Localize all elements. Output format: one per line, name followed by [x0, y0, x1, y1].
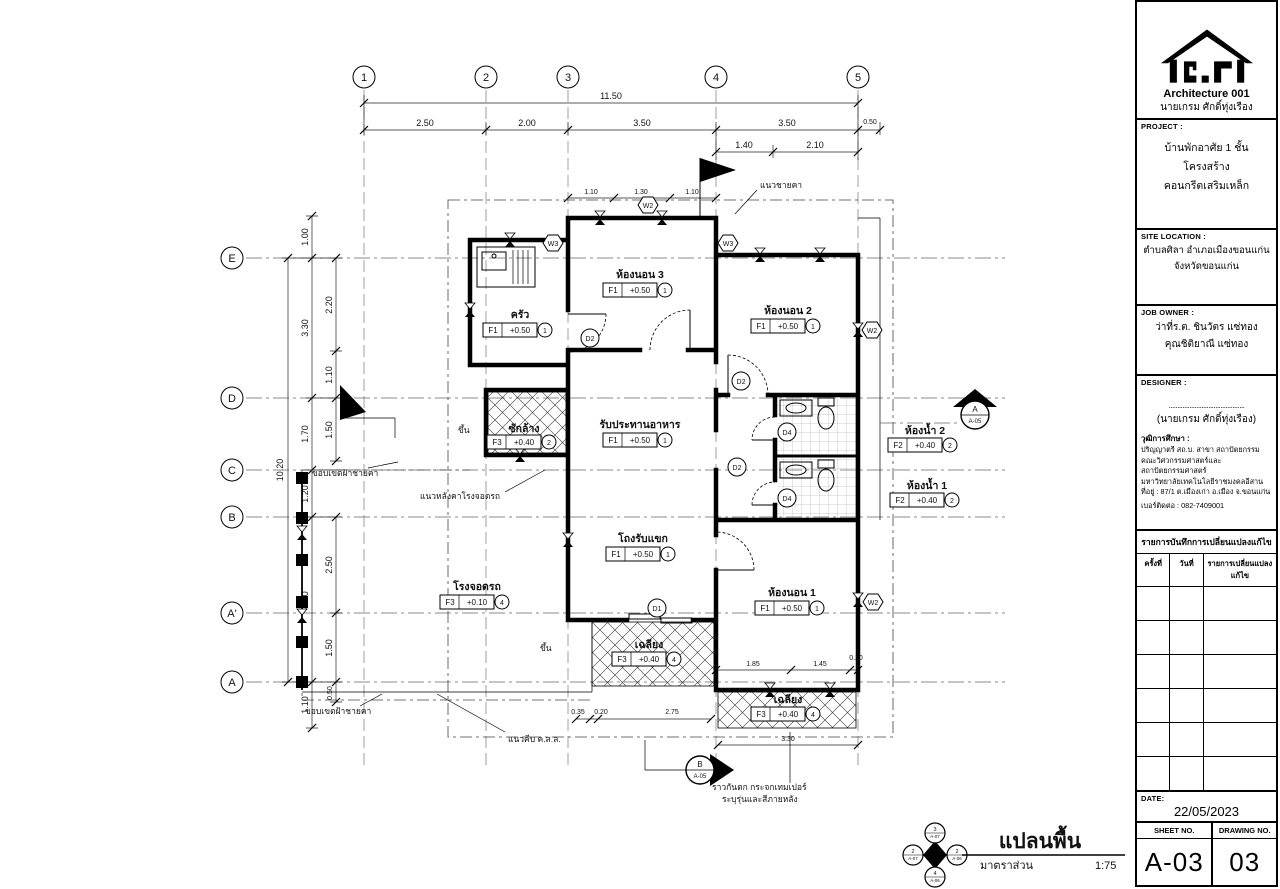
room-label-kitchen: ครัว F1 +0.50 1	[483, 309, 552, 337]
section-marker-bottom: B A-05	[645, 740, 734, 786]
svg-text:F1: F1	[608, 286, 618, 295]
grid-col-label: 5	[855, 72, 861, 84]
site-line: จังหวัดขอนแก่น	[1141, 259, 1272, 275]
owner-line: คุณชิติยาณี แซ่ทอง	[1141, 336, 1272, 353]
railing-note: ระบุรุ่นและสีภายหลัง	[722, 794, 798, 805]
project-section: PROJECT : บ้านพักอาศัย 1 ชั้น โครงสร้างค…	[1137, 120, 1276, 230]
firm-name: Architecture 001	[1163, 88, 1249, 100]
revision-col-desc: รายการเปลี่ยนแปลง แก้ไข	[1204, 554, 1276, 586]
revision-row	[1137, 689, 1276, 723]
revision-row	[1137, 587, 1276, 621]
dim: 1.50	[324, 639, 334, 657]
svg-text:ซักล้าง: ซักล้าง	[509, 422, 540, 435]
project-label: PROJECT :	[1141, 122, 1272, 131]
svg-text:F1: F1	[760, 604, 770, 613]
dim: 2.20	[324, 296, 334, 314]
grid-row-label: B	[228, 512, 235, 524]
window-tag: W2	[643, 203, 654, 210]
section-marker-right: A A-05	[880, 389, 997, 429]
svg-text:4: 4	[672, 657, 676, 664]
window-tag: W2	[867, 328, 878, 335]
window-tag: W2	[868, 600, 879, 607]
svg-text:1: 1	[543, 328, 547, 335]
curb-note: แนวคีบ ค.ส.ล.	[508, 734, 561, 744]
svg-text:A-05: A-05	[969, 419, 982, 425]
dim: 1.10	[685, 189, 699, 196]
dim: 1.00	[300, 228, 310, 246]
door-tag: D1	[653, 606, 662, 613]
svg-text:2: 2	[948, 443, 952, 450]
grid-row-label: A	[228, 677, 236, 689]
grid-row-label: D	[228, 393, 236, 405]
room-label-bedroom3: ห้องนอน 3 F1 +0.50 1	[603, 268, 672, 297]
room-label-garage: โรงจอดรถ F3 +0.10 4	[440, 580, 509, 609]
door-tag: D2	[737, 379, 746, 386]
svg-text:F2: F2	[893, 441, 903, 450]
door-tag: D2	[586, 336, 595, 343]
room-label-bedroom2: ห้องนอน 2 F1 +0.50 1	[751, 304, 820, 333]
sheet-no-value: A-03	[1137, 839, 1211, 885]
date-label: DATE:	[1141, 794, 1272, 803]
dim: 10.20	[275, 459, 285, 482]
grid-row-label: C	[228, 465, 236, 477]
svg-text:+0.40: +0.40	[514, 438, 535, 447]
svg-text:4: 4	[933, 871, 936, 877]
grid-col-label: 1	[361, 72, 367, 84]
dim: 1.30	[634, 189, 648, 196]
svg-text:+0.10: +0.10	[467, 598, 488, 607]
svg-text:A: A	[972, 405, 978, 414]
svg-text:+0.40: +0.40	[639, 655, 660, 664]
education-line: มหาวิทยาลัยเทคโนโลยีราชมงคลอีสาน	[1141, 477, 1272, 488]
svg-text:F1: F1	[756, 322, 766, 331]
room-label-bath2: ห้องน้ำ 2 F2 +0.40 2	[888, 422, 957, 452]
svg-text:B: B	[697, 760, 702, 769]
railing-note: ราวกันตก กระจกเทมเปอร์	[712, 782, 807, 792]
dim: 1.10	[324, 366, 334, 384]
ceiling-note: ขอบเขตฝ้าชายคา	[305, 706, 371, 716]
svg-text:ห้องน้ำ 1: ห้องน้ำ 1	[907, 477, 947, 492]
room-label-bedroom1: ห้องนอน 1 F1 +0.50 1	[755, 586, 824, 615]
firm-owner: นายเกรม ศักดิ์ทุ่งเรือง	[1160, 100, 1253, 115]
project-line: โครงสร้างคอนกรีตเสริมเหล็ก	[1141, 158, 1272, 196]
revision-row	[1137, 723, 1276, 757]
svg-text:+0.50: +0.50	[510, 326, 531, 335]
grid-row-label: A'	[227, 608, 236, 620]
svg-text:+0.50: +0.50	[782, 604, 803, 613]
date-value: 22/05/2023	[1141, 804, 1272, 819]
revision-row	[1137, 621, 1276, 655]
grid-col-label: 3	[565, 72, 571, 84]
eave-note: แนวชายคา	[760, 180, 802, 190]
svg-text:A-06: A-06	[930, 878, 940, 883]
date-section: DATE: 22/05/2023	[1137, 792, 1276, 823]
house-logo-icon	[1153, 26, 1261, 88]
education-line: คณะวิศวกรรมศาสตร์และสถาปัตยกรรมศาสตร์	[1141, 456, 1272, 477]
dim: 1.50	[324, 421, 334, 439]
dim: 11.50	[600, 91, 622, 101]
plan-title-group: 3 A-07 2 A-07 2 A-06 4 A-06 แปลนพื้น มาต…	[903, 823, 1125, 887]
dim: 2.50	[324, 556, 334, 574]
room-label-living: โถงรับแขก F1 +0.50 1	[606, 532, 675, 561]
svg-text:2: 2	[911, 849, 914, 855]
svg-text:+0.50: +0.50	[630, 436, 651, 445]
revision-row	[1137, 655, 1276, 689]
dim: 1.85	[746, 661, 760, 668]
svg-text:2: 2	[950, 498, 954, 505]
svg-text:4: 4	[811, 712, 815, 719]
svg-text:+0.50: +0.50	[778, 322, 799, 331]
room-label-dining: รับประทานอาหาร F1 +0.50 1	[600, 419, 681, 447]
up-label: ขึ้น	[458, 424, 470, 435]
owner-section: JOB OWNER : ว่าที่ร.ต. ชินวัตร แซ่ทอง คุ…	[1137, 306, 1276, 376]
designer-name: (นายเกรม ศักดิ์ทุ่งเรือง)	[1141, 412, 1272, 427]
designer-label: DESIGNER :	[1141, 378, 1272, 387]
svg-text:2: 2	[955, 849, 958, 855]
svg-text:F2: F2	[895, 496, 905, 505]
svg-text:F3: F3	[617, 655, 627, 664]
dim: 2.00	[518, 118, 536, 128]
svg-text:ห้องนอน 3: ห้องนอน 3	[616, 268, 664, 281]
dim: 0.50	[863, 119, 877, 126]
svg-text:1: 1	[811, 324, 815, 331]
dim: 0.50	[327, 686, 334, 700]
dim: 1.40	[735, 140, 753, 150]
dim: 1.45	[813, 661, 827, 668]
dim: 1.70	[300, 425, 310, 443]
garage-roof-note: แนวหลังคาโรงจอดรถ	[420, 491, 500, 501]
dim: 3.50	[778, 118, 796, 128]
svg-text:A-07: A-07	[930, 834, 940, 839]
svg-text:โรงจอดรถ: โรงจอดรถ	[452, 580, 501, 593]
grid-col-label: 2	[483, 72, 489, 84]
svg-text:F1: F1	[611, 550, 621, 559]
education-line: ปริญญาตรี สถ.บ. สาขา สถาปัตยกรรม	[1141, 445, 1272, 456]
dim: 1.10	[584, 189, 598, 196]
svg-text:A-07: A-07	[908, 856, 918, 861]
svg-text:เฉลียง: เฉลียง	[635, 638, 663, 651]
svg-text:F1: F1	[608, 436, 618, 445]
svg-text:1: 1	[666, 552, 670, 559]
svg-text:ครัว: ครัว	[511, 309, 530, 321]
svg-text:F3: F3	[445, 598, 455, 607]
dimensions-top: 11.50 2.50 2.00 3.50 3.50 0.50 1.40 2.10…	[360, 91, 884, 202]
svg-text:4: 4	[500, 600, 504, 607]
svg-text:เฉลียง: เฉลียง	[774, 693, 802, 706]
sheet-number-section: SHEET NO. A-03 DRAWING NO. 03	[1137, 823, 1276, 885]
project-line: บ้านพักอาศัย 1 ชั้น	[1141, 139, 1272, 158]
west-flag-icon	[340, 385, 366, 420]
floor-plan: 1 2 3 4 5 E D C B A' A 11.50 2.50 2.00 3…	[0, 0, 1135, 889]
site-section: SITE LOCATION : ตำบลศิลา อำเภอเมืองขอนแก…	[1137, 230, 1276, 306]
site-line: ตำบลศิลา อำเภอเมืองขอนแก่น	[1141, 243, 1272, 259]
svg-text:F3: F3	[756, 710, 766, 719]
title-block: Architecture 001 นายเกรม ศักดิ์ทุ่งเรือง…	[1135, 0, 1278, 887]
ceiling-note: ขอบเขตฝ้าชายคา	[312, 468, 378, 478]
svg-text:+0.40: +0.40	[778, 710, 799, 719]
designer-section: DESIGNER : .............................…	[1137, 376, 1276, 531]
grid-col-label: 4	[713, 72, 719, 84]
svg-text:ห้องนอน 2: ห้องนอน 2	[764, 304, 812, 317]
revision-table-title: รายการบันทึกการเปลี่ยนแปลงแก้ไข	[1137, 531, 1276, 554]
revision-table: รายการบันทึกการเปลี่ยนแปลงแก้ไข ครั้งที่…	[1137, 531, 1276, 792]
contact-line: เบอร์ติดต่อ : 082-7409001	[1141, 501, 1272, 512]
dim: 2.75	[665, 709, 679, 716]
revision-row	[1137, 757, 1276, 790]
svg-text:+0.40: +0.40	[915, 441, 936, 450]
scale-value: 1:75	[1095, 860, 1116, 872]
room-label-bath1: ห้องน้ำ 1 F2 +0.40 2	[890, 477, 959, 507]
dim: 3.30	[300, 319, 310, 337]
dim: 2.50	[416, 118, 434, 128]
education-line: ที่อยู่ : 87/1 ต.เมืองเก่า อ.เมือง จ.ขอน…	[1141, 487, 1272, 498]
svg-text:ห้องนอน 1: ห้องนอน 1	[768, 586, 816, 599]
north-flag-icon	[700, 158, 736, 182]
walls	[296, 218, 880, 692]
revision-col-no: ครั้งที่	[1137, 554, 1170, 586]
svg-text:F1: F1	[488, 326, 498, 335]
elevation-compass-icon: 3 A-07 2 A-07 2 A-06 4 A-06	[903, 823, 967, 887]
window-tag: W3	[723, 241, 734, 248]
svg-text:F3: F3	[492, 438, 502, 447]
door-tag: D4	[783, 496, 792, 503]
svg-text:รับประทานอาหาร: รับประทานอาหาร	[600, 419, 681, 431]
revision-col-date: วันที่	[1170, 554, 1203, 586]
owner-label: JOB OWNER :	[1141, 308, 1272, 317]
svg-text:2: 2	[547, 440, 551, 447]
plan-title: แปลนพื้น	[999, 825, 1082, 853]
door-tag: D4	[783, 430, 792, 437]
drawing-sheet: 1 2 3 4 5 E D C B A' A 11.50 2.50 2.00 3…	[0, 0, 1280, 889]
firm-logo: Architecture 001 นายเกรม ศักดิ์ทุ่งเรือง	[1137, 2, 1276, 120]
sheet-no-label: SHEET NO.	[1137, 823, 1211, 839]
dim: 2.10	[806, 140, 824, 150]
grid-row-label: E	[228, 253, 235, 265]
door-tag: D2	[733, 465, 742, 472]
drawing-no-value: 03	[1213, 839, 1276, 885]
window-tag: W3	[548, 241, 559, 248]
svg-text:A-06: A-06	[952, 856, 962, 861]
svg-text:ห้องน้ำ 2: ห้องน้ำ 2	[905, 422, 945, 437]
dim: 3.50	[633, 118, 651, 128]
signature-line: ........................................…	[1141, 401, 1272, 410]
svg-text:1: 1	[663, 438, 667, 445]
scale-label: มาตราส่วน	[980, 860, 1034, 872]
drawing-no-label: DRAWING NO.	[1213, 823, 1276, 839]
site-label: SITE LOCATION :	[1141, 232, 1272, 241]
owner-line: ว่าที่ร.ต. ชินวัตร แซ่ทอง	[1141, 319, 1272, 336]
svg-text:+0.50: +0.50	[630, 286, 651, 295]
svg-text:+0.50: +0.50	[633, 550, 654, 559]
svg-text:A-05: A-05	[694, 774, 707, 780]
svg-text:1: 1	[663, 288, 667, 295]
svg-text:+0.40: +0.40	[917, 496, 938, 505]
svg-text:โถงรับแขก: โถงรับแขก	[617, 532, 668, 545]
up-label: ขึ้น	[540, 642, 552, 653]
dim: 0.20	[594, 709, 608, 716]
svg-text:1: 1	[815, 606, 819, 613]
dim: 0.35	[571, 709, 585, 716]
svg-text:3: 3	[933, 827, 936, 833]
education-label: วุฒิการศึกษา :	[1141, 433, 1272, 445]
